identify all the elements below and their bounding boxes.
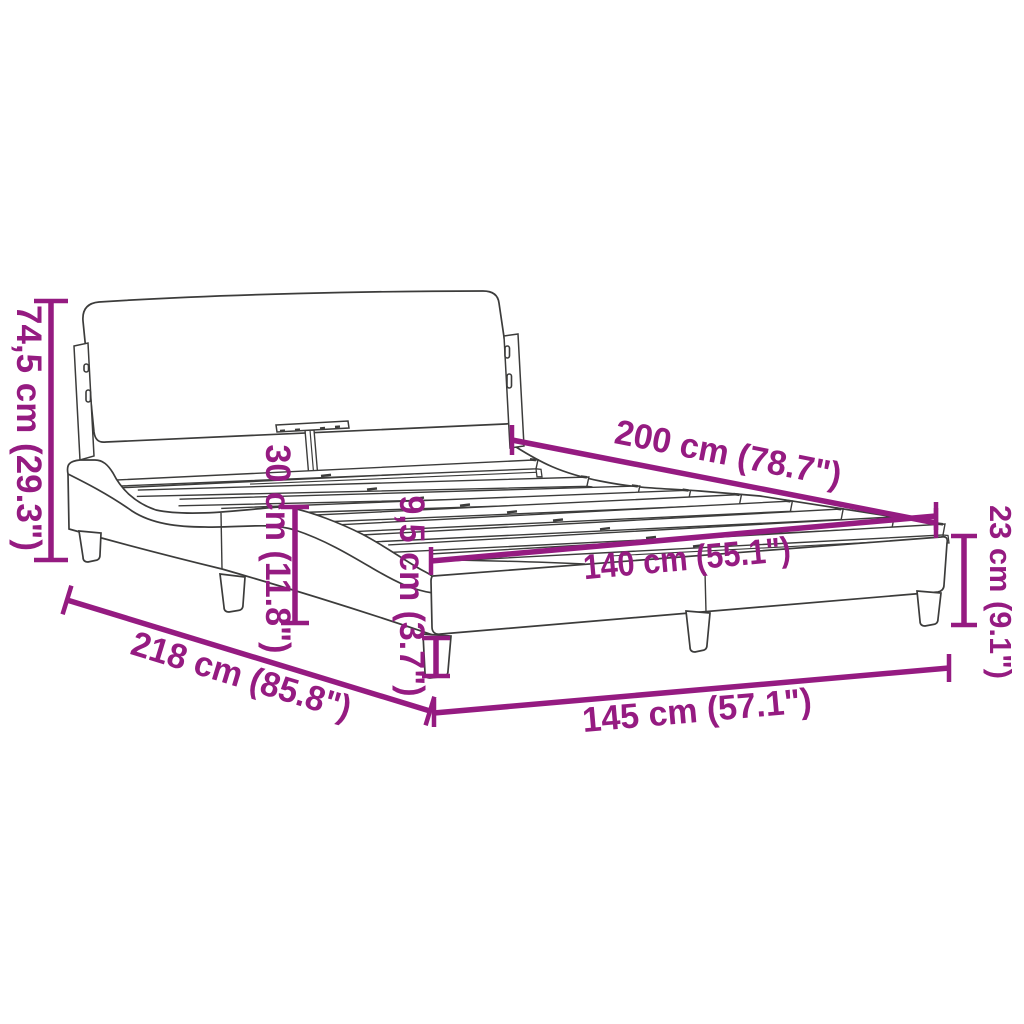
svg-text:30 cm (11.8"): 30 cm (11.8") [258, 445, 297, 654]
svg-text:23 cm (9.1"): 23 cm (9.1") [983, 505, 1018, 679]
svg-text:74,5 cm (29.3"): 74,5 cm (29.3") [9, 305, 48, 551]
svg-text:9,5 cm (3.7"): 9,5 cm (3.7") [392, 496, 431, 697]
